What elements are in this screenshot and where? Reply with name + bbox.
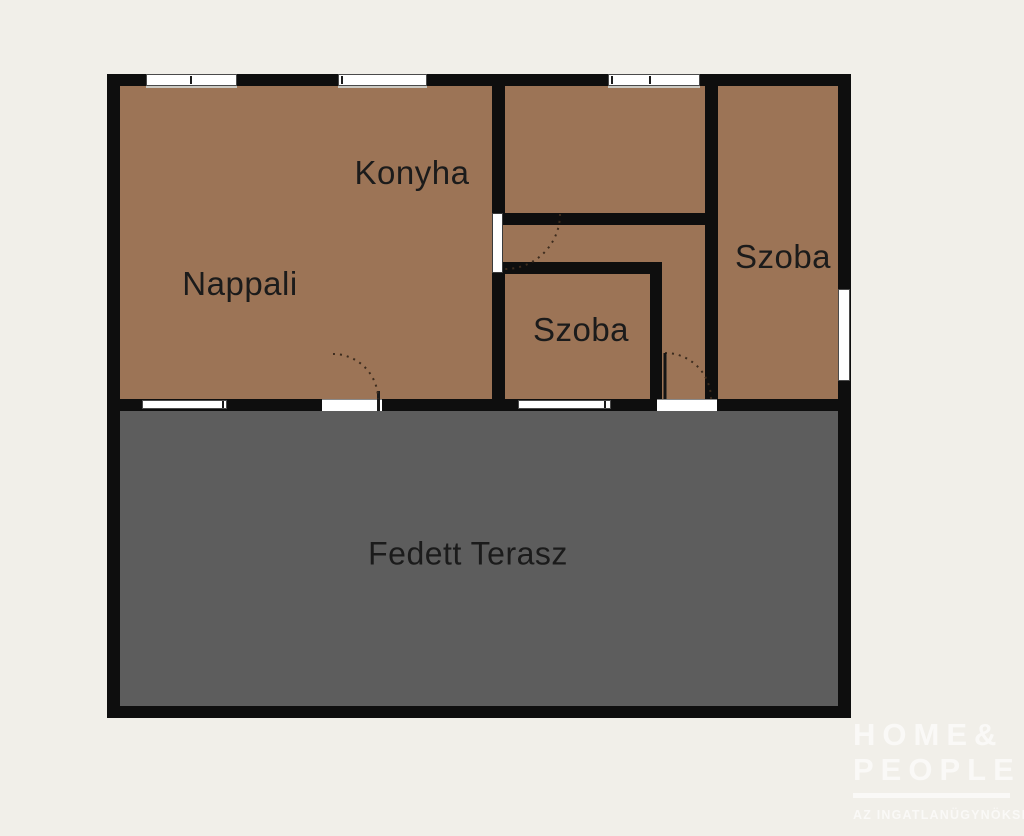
door-arc-hall-terrace [665,353,711,399]
door-arc-nappali-terrace [333,354,378,399]
room-label-konyha: Konyha [355,154,470,192]
room-label-terrace: Fedett Terasz [368,536,568,573]
room-label-nappali: Nappali [182,265,297,303]
door-swing-arcs [0,0,1024,836]
watermark-tagline: AZ INGATLANÜGYNÖKSÉG [853,808,1024,822]
watermark-brand-line1: HOME& [853,719,1003,750]
watermark-brand-line2: PEOPLE [853,754,1021,785]
room-label-szoba-right: Szoba [735,238,831,276]
floorplan-canvas: Konyha Nappali Szoba Szoba Fedett Terasz… [0,0,1024,836]
room-label-szoba-small: Szoba [533,311,629,349]
door-arc-hallway [505,214,560,269]
